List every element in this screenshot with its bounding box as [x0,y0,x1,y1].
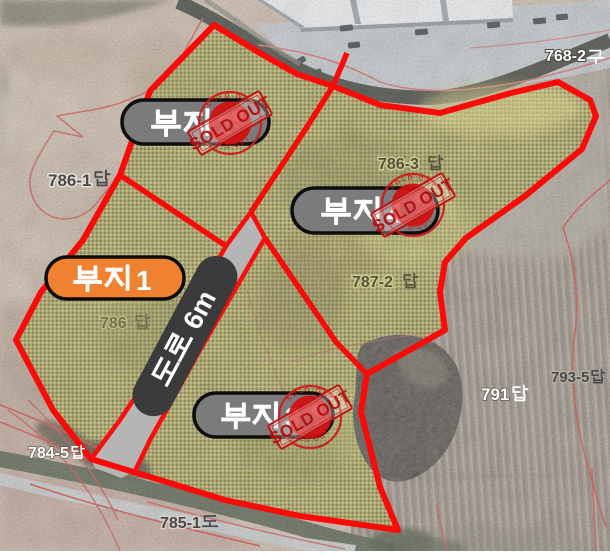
svg-text:786: 786 [100,315,127,332]
svg-text:768-2: 768-2 [545,48,586,65]
svg-text:785-1: 785-1 [160,515,201,532]
svg-text:784-5: 784-5 [28,445,69,462]
svg-text:793-5: 793-5 [551,369,589,386]
svg-text:791: 791 [481,385,509,404]
svg-text:786-1: 786-1 [48,171,91,190]
svg-text:786-3: 786-3 [378,156,419,173]
svg-text:787-2: 787-2 [352,274,393,291]
svg-text:1: 1 [136,265,152,296]
